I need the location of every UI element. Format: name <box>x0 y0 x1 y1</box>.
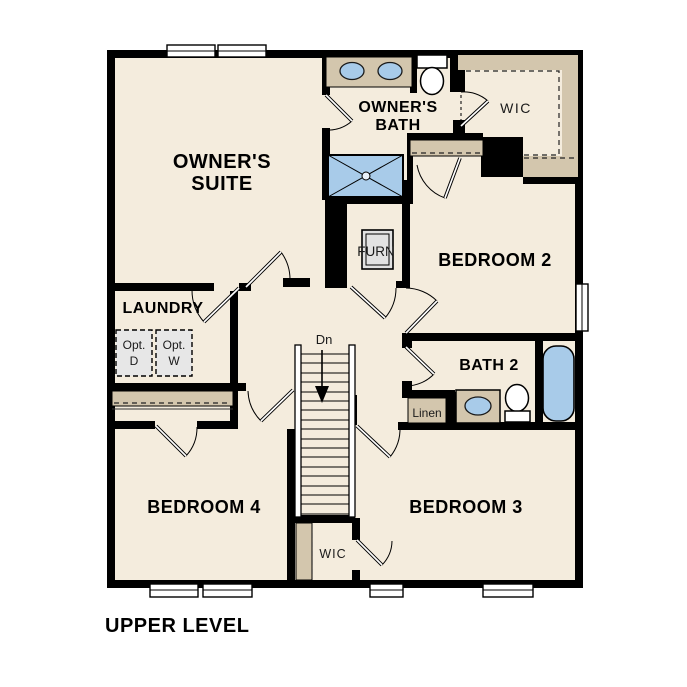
owners-bath-label-2: BATH <box>375 117 420 134</box>
bedroom2-closet-shelf <box>410 140 483 156</box>
floor-plan-page: OWNER'S SUITE OWNER'S BATH WIC BEDROOM 2… <box>0 0 687 687</box>
bedroom4-label: BEDROOM 4 <box>147 497 261 517</box>
sink-right-icon <box>378 63 402 80</box>
owners-bath-label-1: OWNER'S <box>358 99 437 116</box>
linen-label: Linen <box>412 406 441 420</box>
wic-shelf-top <box>458 55 578 70</box>
toilet-bath2-icon <box>505 385 530 423</box>
plan-title: UPPER LEVEL <box>105 615 249 637</box>
wic-bottom-label: WIC <box>319 547 346 561</box>
owners-suite-label-2: SUITE <box>191 173 252 195</box>
bathtub-icon <box>543 346 574 421</box>
sink-left-icon <box>340 63 364 80</box>
stair-rail-right <box>349 345 355 517</box>
dn-label: Dn <box>316 332 333 347</box>
furn-label: FURN <box>357 244 395 259</box>
laundry-label: LAUNDRY <box>122 300 203 317</box>
shower-icon <box>328 155 403 197</box>
opt-d-label-1: Opt. <box>123 338 146 352</box>
opt-dryer-box <box>116 330 152 376</box>
opt-washer-box <box>156 330 192 376</box>
bath2-label: BATH 2 <box>459 357 519 374</box>
bath2-sink-icon <box>465 397 491 415</box>
bedroom3-label: BEDROOM 3 <box>409 497 523 517</box>
floor-plan-svg: OWNER'S SUITE OWNER'S BATH WIC BEDROOM 2… <box>0 0 687 687</box>
owners-suite-label-1: OWNER'S <box>173 151 271 173</box>
opt-d-label-2: D <box>130 354 139 368</box>
wic-top-label: WIC <box>500 100 532 116</box>
opt-w-label-1: Opt. <box>163 338 186 352</box>
bedroom2-label: BEDROOM 2 <box>438 250 552 270</box>
wic-shelf-bottom <box>523 156 562 177</box>
wic-shelf-right <box>562 55 578 177</box>
opt-w-label-2: W <box>168 354 180 368</box>
wic-bottom-shelf <box>296 523 312 580</box>
stair-rail-left <box>295 345 301 517</box>
hall-closet-shelf <box>112 391 233 406</box>
